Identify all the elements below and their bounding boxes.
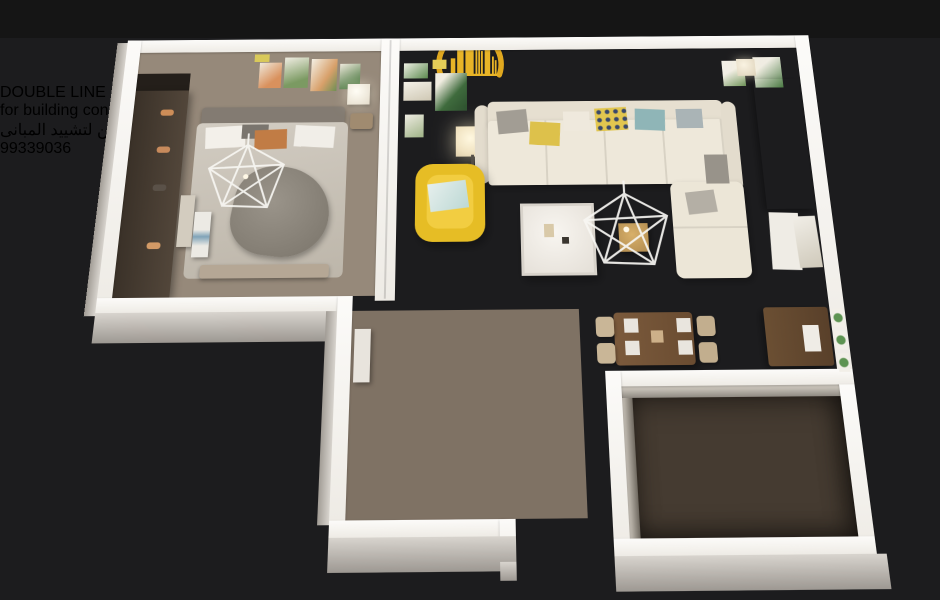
wall-art-frame (435, 73, 467, 111)
apartment-floorplan-3d (61, 35, 899, 598)
shoe-pair (160, 110, 174, 116)
shoe-pair (146, 242, 160, 249)
potted-plant (784, 272, 806, 292)
pendant-globe-lamp (347, 84, 370, 105)
geometric-wire-chandelier (571, 180, 682, 271)
shoe-pair (152, 184, 166, 191)
poster-canvas: www.kuwait-home.com DOUBLE LINE for buil… (0, 0, 940, 600)
empty-room-floor (621, 384, 858, 538)
dinner-plate (678, 340, 693, 354)
hallway-south-wall (328, 519, 516, 538)
dining-chair (597, 343, 616, 364)
sofa-pillow-teal (635, 109, 666, 131)
sofa-pillow-bluegray (675, 109, 703, 128)
geometric-wire-chandelier (197, 133, 294, 214)
shoe-pair (156, 146, 170, 152)
wall-art-frame (404, 63, 428, 78)
table-decor-candle (544, 224, 554, 237)
empty-room-south-wall-face (614, 554, 891, 592)
wardrobe-top-cabinet (136, 73, 191, 90)
table-centerpiece (651, 330, 664, 342)
wall-art-frame (258, 63, 282, 89)
dining-chair (698, 342, 718, 363)
hallway-lighting (345, 309, 587, 521)
sideboard-plant (768, 311, 786, 327)
sofa-pillow-yellow-pattern (594, 107, 628, 131)
wall-art-frame (405, 114, 424, 137)
bed-end-bench (199, 264, 329, 279)
nightstand (350, 113, 373, 129)
phone-number: 99339036 (0, 140, 71, 157)
botanical-wall-card (834, 331, 848, 349)
hall-cabinet (353, 329, 371, 383)
dinner-plate (676, 318, 691, 332)
top-shadow-band (0, 0, 940, 38)
shelf-lamp (736, 59, 756, 76)
dining-chair (595, 317, 614, 337)
wall-art-frame (433, 60, 447, 69)
sofa-pillow-yellow (529, 121, 560, 146)
botanical-wall-card (837, 353, 851, 372)
botanical-wall-card (831, 309, 844, 327)
entry-stub-face (500, 562, 517, 581)
sideboard-decor-panel (802, 325, 821, 352)
wall-art-frame (283, 57, 309, 88)
table-decor-dot (562, 237, 569, 244)
wall-art-frame (403, 82, 431, 101)
wall-art-frame (255, 54, 270, 62)
dinner-plate (624, 318, 639, 332)
sofa-pillow-cream (563, 111, 590, 130)
hallway-south-wall-face (327, 536, 517, 573)
bedroom-south-wall-face (92, 311, 338, 343)
sideboard-plant (772, 348, 790, 365)
empty-room-inner-wallface-top (621, 384, 840, 398)
bed-pillow (294, 125, 336, 148)
dining-chair (696, 316, 716, 336)
sofa-pillow-gray (496, 109, 529, 134)
sofa-pillow-gray (704, 154, 730, 183)
empty-room-north-wall (605, 369, 854, 387)
wall-art-frame (310, 59, 337, 91)
dinner-plate (625, 341, 640, 355)
